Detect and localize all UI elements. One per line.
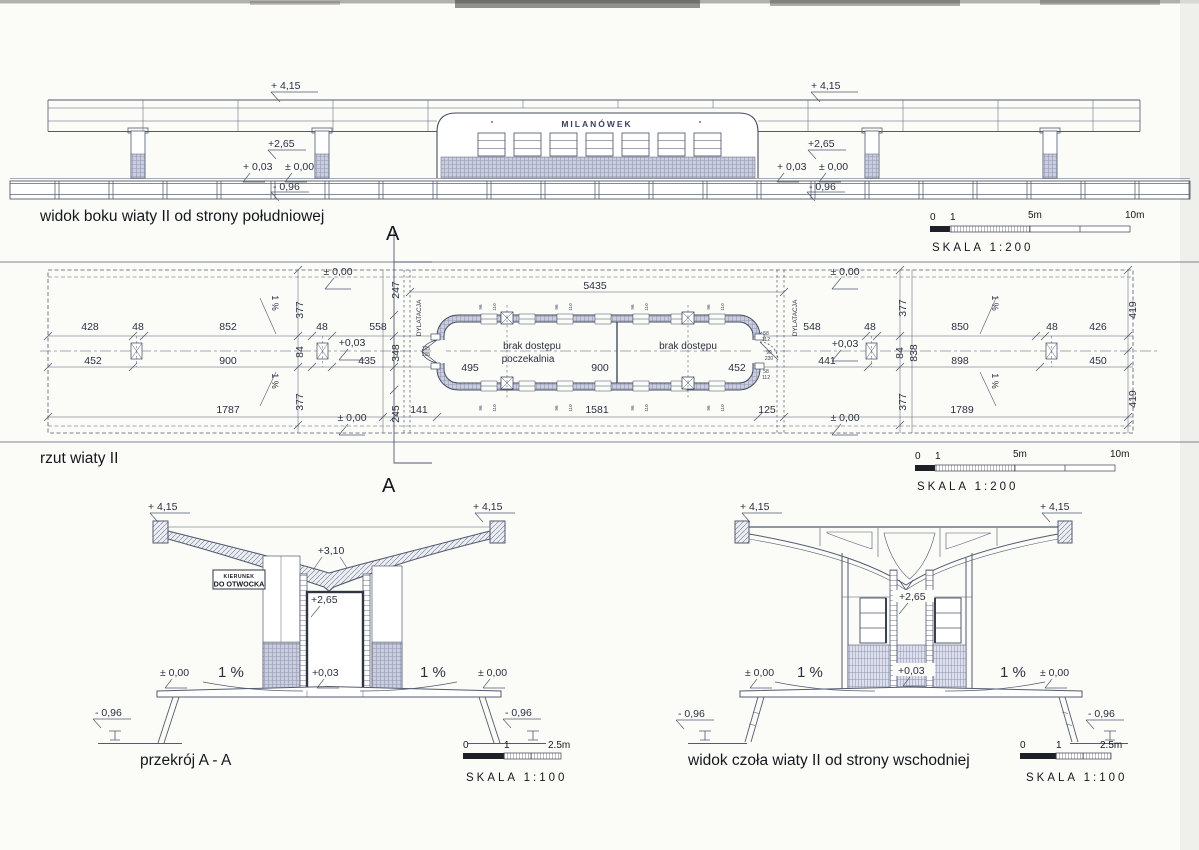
level-label: +2,65 [311, 594, 338, 606]
dimension-label: 495 [461, 362, 479, 374]
dimension-label: 450 [1089, 355, 1107, 367]
plan-title: rzut wiaty II [40, 450, 118, 467]
small-dimension-label: 96 [630, 405, 635, 411]
scale-tick-label: 0 [930, 212, 936, 223]
small-dimension-label: 110 [644, 303, 649, 311]
drawing-canvas: widok boku wiaty II od strony południowe… [0, 0, 1199, 850]
small-dimension-label: 110 [568, 303, 573, 311]
level-label: +2,65 [808, 138, 835, 150]
small-dimension-label: 110 [492, 303, 497, 311]
level-label: ± 0,00 [819, 161, 848, 173]
dimension-label: DYLATACJA [792, 299, 799, 336]
small-dimension-label: 110 [720, 404, 725, 412]
plan-dimension-labels: 4284885248558548488504842645290043544189… [81, 266, 1139, 424]
side-view-title: widok boku wiaty II od strony południowe… [39, 208, 324, 225]
section-platform [98, 687, 546, 744]
dimension-label: 441 [818, 355, 836, 367]
dimension-label: 435 [358, 355, 376, 367]
small-dimension-label: 230 [765, 356, 774, 362]
dimension-label: 48 [316, 321, 328, 333]
level-label: - 0,96 [505, 707, 532, 719]
dimension-label: 838 [908, 344, 920, 362]
direction-sign-line2: DO OTWOCKA [214, 580, 265, 589]
dimension-label: 84 [894, 347, 906, 359]
level-label: - 0,96 [809, 181, 836, 193]
scale-bar-3-ticks: 012.5m [463, 740, 570, 751]
level-label: +2,65 [268, 138, 295, 150]
dimension-label: 348 [390, 344, 402, 362]
scale-tick-label: 0 [1020, 740, 1026, 751]
level-label: +2,65 [899, 591, 926, 603]
dimension-label: 852 [219, 321, 237, 333]
dimension-label: 558 [369, 321, 387, 333]
station-sign-label: MILANÓWEK [561, 118, 632, 129]
dimension-label: 377 [897, 299, 909, 317]
dimension-label: ± 0,00 [337, 412, 366, 424]
dimension-label: 1 % [270, 295, 280, 311]
dimension-label: ± 0,00 [323, 266, 352, 278]
scale-tick-label: 2.5m [1100, 740, 1122, 751]
east-roof [735, 521, 1072, 590]
scale-tick-label: 1 [504, 740, 510, 751]
scale-tick-label: 10m [1125, 210, 1144, 221]
dimension-label: 419 [1127, 390, 1139, 408]
scanned-architectural-drawing: widok boku wiaty II od strony południowe… [0, 0, 1199, 850]
scale-tick-label: 2.5m [548, 740, 570, 751]
level-label: + 4,15 [740, 501, 770, 513]
level-label: + 0,03 [777, 161, 807, 173]
dimension-label: ± 0,00 [830, 266, 859, 278]
dimension-label: 377 [294, 301, 306, 319]
building-windows [478, 133, 721, 156]
scale-bar-1-100-section [463, 753, 561, 759]
room-label-no-access-left: brak dostępu [503, 341, 561, 352]
dimension-label: ± 0,00 [830, 412, 859, 424]
dimension-label: 377 [897, 393, 909, 411]
level-label: 1 % [797, 664, 823, 681]
level-label: +0,03 [898, 665, 925, 677]
level-label: + 4,15 [473, 501, 503, 513]
small-dimension-label: 96 [706, 405, 711, 411]
dimension-label: 850 [951, 321, 969, 333]
small-dimension-label: 96 [554, 304, 559, 310]
level-label: ± 0,00 [478, 667, 507, 679]
scale-label-3: SKALA 1:100 [466, 772, 567, 784]
scale-bar-1-200-top [930, 226, 1130, 232]
small-dimension-label: 96 [554, 405, 559, 411]
level-label: ± 0,00 [160, 667, 189, 679]
level-label: +0,03 [312, 667, 339, 679]
dimension-label: 900 [219, 355, 237, 367]
dimension-label: 1787 [216, 404, 240, 416]
room-label-no-access-right: brak dostępu [659, 341, 717, 352]
level-label: + 4,15 [148, 501, 178, 513]
level-label: ± 0,00 [745, 667, 774, 679]
dimension-label: +0,03 [832, 338, 859, 350]
scale-label-2: SKALA 1:200 [917, 481, 1018, 493]
level-label: ± 0,00 [1040, 667, 1069, 679]
scale-tick-label: 0 [915, 451, 921, 462]
small-dimension-label: 110 [644, 404, 649, 412]
level-label: + 4,15 [811, 80, 841, 92]
dimension-label: 1 % [990, 295, 1000, 311]
dimension-label: +0,03 [339, 337, 366, 349]
scale-label-4: SKALA 1:100 [1026, 772, 1127, 784]
dimension-label: 141 [410, 404, 428, 416]
scale-tick-label: 1 [950, 212, 956, 223]
scale-bar-4-ticks: 012.5m [1020, 740, 1122, 751]
dimension-label: 1789 [950, 404, 974, 416]
small-dimension-label: 96 [478, 405, 483, 411]
level-label: +3,10 [318, 545, 345, 557]
scale-label-1: SKALA 1:200 [932, 242, 1033, 254]
dimension-label: 5435 [583, 280, 607, 292]
scale-bar-1-ticks: 015m10m [930, 210, 1144, 223]
dimension-label: 48 [1046, 321, 1058, 333]
dimension-label: 245 [390, 405, 402, 423]
small-dimension-label: 96 [478, 304, 483, 310]
dimension-label: 898 [951, 355, 969, 367]
plan-drawing [0, 230, 1199, 463]
level-label: 1 % [420, 664, 446, 681]
dimension-label: 548 [803, 321, 821, 333]
small-dimension-label: 110 [720, 303, 725, 311]
scale-tick-label: 5m [1013, 449, 1027, 460]
dimension-label: 452 [84, 355, 102, 367]
level-label: + 4,15 [271, 80, 301, 92]
scale-tick-label: 5m [1028, 210, 1042, 221]
level-label: - 0,96 [273, 181, 300, 193]
dimension-label: 1 % [990, 373, 1000, 389]
small-dimension-label: 96 [630, 304, 635, 310]
dimension-label: 247 [390, 281, 402, 299]
dimension-label: 1581 [585, 404, 609, 416]
dimension-label: 125 [758, 404, 776, 416]
east-view-title: widok czoła wiaty II od strony wschodnie… [687, 752, 970, 769]
level-label: ± 0,00 [285, 161, 314, 173]
scale-tick-label: 10m [1110, 449, 1129, 460]
east-view-drawing [676, 513, 1128, 744]
scale-bar-2-ticks: 015m10m [915, 449, 1129, 462]
scale-bar-1-100-east [1020, 753, 1111, 759]
level-label: + 4,15 [1040, 501, 1070, 513]
small-dimension-label: 96 [706, 304, 711, 310]
dimension-label: 377 [294, 393, 306, 411]
dimension-label: DYLATACJA [416, 299, 423, 336]
dimension-label: 900 [591, 362, 609, 374]
level-label: - 0,96 [1088, 708, 1115, 720]
level-label: 1 % [218, 664, 244, 681]
dimension-label: 48 [864, 321, 876, 333]
shelter-building-plan [422, 305, 778, 400]
dimension-label: 419 [1127, 301, 1139, 319]
dimension-label: 1 % [270, 373, 280, 389]
scale-bar-1-200-mid [915, 465, 1115, 471]
level-label: + 0,03 [243, 161, 273, 173]
section-title: przekrój A - A [140, 752, 232, 769]
platform-edge-strip [10, 179, 1190, 200]
small-dimension-label: 110 [568, 404, 573, 412]
section-marker-top: A [386, 223, 400, 245]
plan-lines [48, 230, 1133, 463]
section-marker-bottom: A [382, 475, 396, 497]
small-dimension-label: 205 [422, 352, 431, 358]
level-label: 1 % [1000, 664, 1026, 681]
level-label: - 0,96 [678, 708, 705, 720]
east-platform [688, 687, 1128, 744]
small-dimension-label: 110 [492, 404, 497, 412]
side-view-drawing [10, 92, 1190, 201]
dimension-label: 452 [728, 362, 746, 374]
small-dimension-label: 112 [762, 375, 770, 381]
dimension-label: 426 [1089, 321, 1107, 333]
dimension-label: 48 [132, 321, 144, 333]
scale-tick-label: 1 [1056, 740, 1062, 751]
dimension-label: 84 [294, 346, 306, 358]
room-label-waiting: poczekalnia [502, 354, 555, 365]
scale-tick-label: 1 [935, 451, 941, 462]
dimension-label: 428 [81, 321, 99, 333]
scale-tick-label: 0 [463, 740, 469, 751]
small-dimension-label: 112 [762, 337, 770, 343]
level-label: - 0,96 [95, 707, 122, 719]
